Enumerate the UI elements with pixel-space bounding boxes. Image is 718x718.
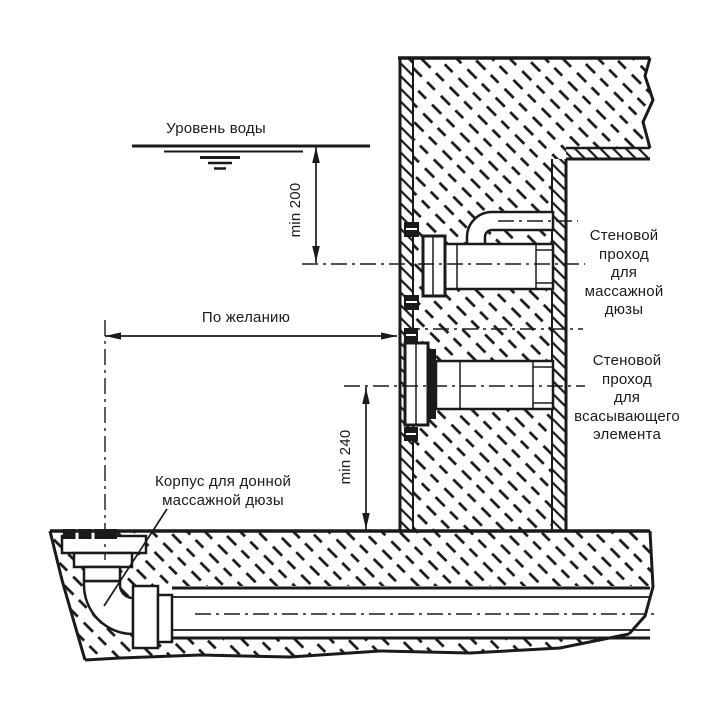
min200-dimension-label: min 200 [287, 183, 306, 238]
floor-drain-pipe [133, 586, 656, 639]
pipe-union-2 [158, 595, 172, 642]
dimension-min240 [362, 387, 370, 530]
suction-barrel [436, 361, 553, 409]
suction-wall-pass-label: Стеновой проход для всасывающего элемент… [574, 352, 680, 445]
water-level-mark [132, 146, 370, 169]
wall-step-edge-band [566, 148, 650, 159]
massage-barrel [433, 244, 553, 289]
dimension-min200 [312, 146, 320, 263]
suction-seal-bar [428, 349, 436, 419]
wall-pool-side-liner-band [400, 58, 413, 531]
pipe-union-1 [133, 586, 158, 648]
bottom-nozzle-housing-label: Корпус для донной массажной дюзы [155, 472, 291, 510]
min240-dimension-label: min 240 [337, 430, 356, 485]
technical-diagram: Уровень воды min 200 По желанию min 240 … [0, 0, 718, 718]
massage-flange [423, 236, 445, 296]
optional-distance-label: По желанию [202, 309, 290, 328]
water-level-label: Уровень воды [166, 120, 266, 139]
massage-wall-pass-label: Стеновой проход для массажной дюзы [585, 227, 664, 320]
